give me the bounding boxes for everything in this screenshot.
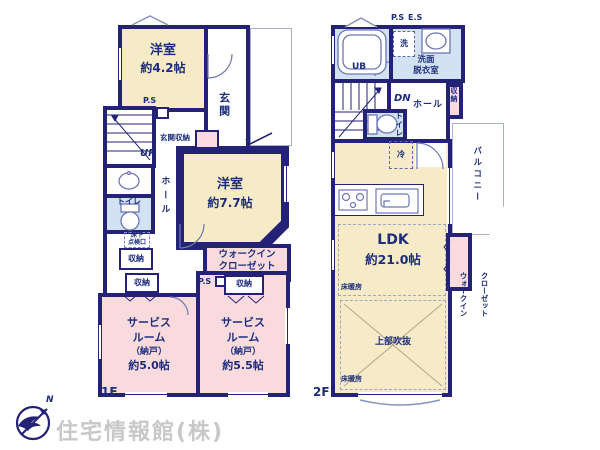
entrance-door-mark: [246, 133, 272, 144]
storage-label-2f: 収納: [450, 87, 458, 103]
ldk-name: LDK: [350, 232, 436, 248]
genkan-storage-label: 玄関収納: [160, 134, 190, 143]
service50-name2: ルーム: [98, 332, 200, 345]
kitchen-sink-icon: [376, 189, 418, 213]
ps-label-top-1f: P.S: [143, 96, 156, 105]
bay-window-icon: [345, 18, 377, 27]
compass: N: [10, 398, 60, 446]
floor1-label: 1F: [101, 386, 118, 400]
floorplan-canvas: 洋室 約4.2帖 P.S 玄関 玄関収納 UP ホール トイレ 洋室 約7.7帖…: [0, 0, 600, 450]
washer-label: 洗: [393, 39, 415, 48]
es-label-2f: E.S: [408, 13, 422, 22]
ps-label-2f: P.S: [391, 13, 404, 22]
ps-label-mid-1f: P.S: [198, 277, 211, 286]
up-label: UP: [140, 148, 155, 160]
toilet-icon: [368, 115, 397, 134]
toilet-label-2f: トイレ: [394, 112, 403, 138]
storage-label-a: 収納: [119, 254, 153, 263]
toilet-label-1f: トイレ: [103, 197, 155, 206]
service55-size: 約5.5帖: [196, 360, 290, 373]
storage-label-b: 収納: [125, 278, 159, 287]
refrigerator-label: 冷: [389, 150, 413, 159]
void-above-label: 上部吹抜: [350, 337, 436, 347]
service50-name1: サービス: [98, 317, 200, 330]
wic-2f-label-2: クローゼット: [480, 272, 489, 317]
genkan-label: 玄関: [217, 92, 230, 118]
balcony-label: バルコニー: [471, 146, 481, 204]
ldk-size: 約21.0帖: [350, 253, 436, 267]
floor2-label: 2F: [313, 386, 330, 400]
fixtures-overlay: [0, 0, 600, 450]
stove-icon: [339, 190, 367, 210]
wic-1f-label-2: クローゼット: [203, 262, 291, 273]
service55-name1: サービス: [196, 317, 290, 330]
dn-label: DN: [394, 93, 411, 105]
ub-label: UB: [352, 62, 366, 72]
washroom-label-1: 洗面: [400, 56, 452, 66]
watermark-text: 住宅情報館(株): [56, 414, 224, 446]
room-7_7-size: 約7.7帖: [176, 197, 284, 211]
room-4_2-size: 約4.2帖: [118, 62, 208, 76]
wic-2f-label: ウォークイン クローゼット: [447, 236, 500, 317]
bay-window-icon: [132, 16, 168, 25]
sink-icon: [422, 29, 450, 53]
toilet-icon: [121, 204, 139, 230]
bow-window-icon: [360, 400, 440, 405]
floor-heating-label-upper: 床暖房: [341, 283, 362, 291]
underfloor-hatch-label-2: 点検口: [124, 240, 150, 247]
hall-label-1f: ホール: [159, 176, 169, 218]
service50-name3: （納戸）: [98, 347, 200, 357]
room-4_2-name: 洋室: [118, 44, 208, 59]
storage-label-c: 収納: [224, 279, 264, 288]
service50-size: 約5.0帖: [98, 360, 200, 373]
room-7_7-name: 洋室: [176, 178, 284, 193]
wic-1f-label-1: ウォークイン: [203, 250, 291, 261]
hall-label-2f: ホール: [413, 100, 443, 110]
wic-2f-label-1: ウォークイン: [459, 272, 468, 317]
washbasin-icon: [119, 172, 139, 190]
washroom-label-2: 脱衣室: [400, 67, 452, 77]
compass-north-label: N: [46, 395, 54, 405]
service55-name2: ルーム: [196, 332, 290, 345]
floor-heating-label-lower: 床暖房: [341, 375, 362, 383]
service55-name3: （納戸）: [196, 347, 290, 357]
